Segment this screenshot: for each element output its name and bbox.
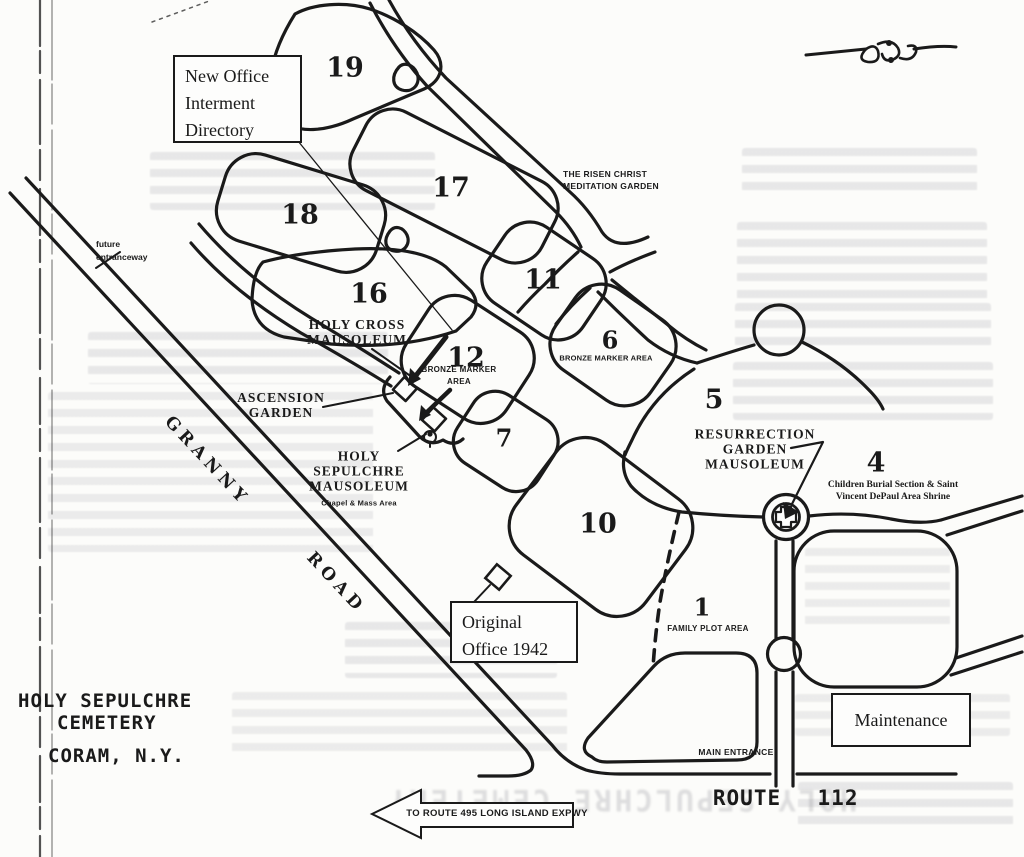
future-entranceway-label: future entranceway bbox=[96, 238, 148, 264]
children-burial-line: Children Burial Section & Saint bbox=[828, 479, 958, 491]
exit-road-east-lower bbox=[951, 636, 1022, 675]
section-18-number: 18 bbox=[281, 200, 319, 231]
holy-sepulchre-mausoleum-label: HOLY SEPULCHRE MAUSOLEUM bbox=[309, 449, 409, 494]
section-5-number: 5 bbox=[705, 385, 724, 416]
section-1-number: 1 bbox=[694, 593, 711, 622]
ascension-line: GARDEN bbox=[237, 405, 325, 420]
resurrection-line: MAUSOLEUM bbox=[695, 457, 816, 472]
ascension-pointer-line bbox=[323, 393, 393, 407]
resurrection-line: GARDEN bbox=[695, 442, 816, 457]
section-7-number: 7 bbox=[496, 424, 513, 453]
children-burial-label: Children Burial Section & Saint Vincent … bbox=[828, 479, 958, 503]
island bbox=[386, 228, 408, 252]
bronze-marker-line: AREA bbox=[421, 376, 496, 388]
hsm-line: MAUSOLEUM bbox=[309, 479, 409, 494]
section-11-number: 11 bbox=[524, 265, 562, 296]
road-stub bbox=[610, 252, 655, 272]
road-edge bbox=[802, 342, 883, 409]
road-edge bbox=[612, 280, 706, 350]
maintenance-box: Maintenance bbox=[831, 693, 971, 747]
new-office-line: Directory bbox=[185, 117, 290, 144]
ascension-garden-label: ASCENSION GARDEN bbox=[237, 390, 325, 420]
road-edge bbox=[809, 514, 941, 522]
family-plot-area-label: FAMILY PLOT AREA bbox=[667, 623, 748, 635]
original-office-flagpole bbox=[474, 585, 490, 602]
granny-road-edge bbox=[10, 193, 533, 776]
future-line: future bbox=[96, 238, 148, 251]
title-line-2: CEMETERY bbox=[57, 712, 157, 734]
risen-christ-label: THE RISEN CHRIST MEDITATION GARDEN bbox=[563, 168, 659, 192]
scan-mark bbox=[152, 0, 212, 22]
island bbox=[394, 64, 418, 90]
cul-de-sac bbox=[754, 305, 804, 355]
section-17-number: 17 bbox=[432, 173, 470, 204]
section-6-number: 6 bbox=[602, 326, 619, 355]
road-edge bbox=[697, 345, 754, 363]
maintenance-loop bbox=[794, 531, 957, 687]
future-line: entranceway bbox=[96, 251, 148, 264]
bronze-marker-area-6-label: BRONZE MARKER AREA bbox=[559, 354, 652, 363]
section-19-number: 19 bbox=[326, 53, 364, 84]
statue-icon bbox=[424, 431, 436, 447]
route-112-label: ROUTE bbox=[713, 786, 781, 810]
flourish-divider-icon bbox=[806, 40, 956, 63]
hsm-line: SEPULCHRE bbox=[309, 464, 409, 479]
cemetery-map-page: HOLY SEPULCHRE CEMETERY bbox=[0, 0, 1024, 857]
original-office-line: Office 1942 bbox=[462, 636, 566, 663]
maintenance-label: Maintenance bbox=[855, 707, 948, 734]
risen-christ-line: MEDITATION GARDEN bbox=[563, 180, 659, 192]
bronze-marker-line: BRONZE MARKER bbox=[421, 364, 496, 376]
new-office-directory-box: New Office Interment Directory bbox=[173, 55, 302, 143]
main-entrance-label: MAIN ENTRANCE bbox=[698, 746, 773, 758]
children-burial-line: Vincent DePaul Area Shrine bbox=[828, 491, 958, 503]
section-16-number: 16 bbox=[350, 279, 388, 310]
resurrection-garden-mausoleum-label: RESURRECTION GARDEN MAUSOLEUM bbox=[695, 427, 816, 472]
new-office-line: New Office bbox=[185, 63, 290, 90]
resurrection-line: RESURRECTION bbox=[695, 427, 816, 442]
route-112-number: 112 bbox=[818, 786, 859, 810]
hsm-line: HOLY bbox=[309, 449, 409, 464]
title-line-3: CORAM, N.Y. bbox=[48, 745, 185, 767]
holy-cross-line: HOLY CROSS bbox=[307, 317, 407, 332]
new-office-line: Interment bbox=[185, 90, 290, 117]
title-line-1: HOLY SEPULCHRE bbox=[18, 690, 192, 712]
road-edge bbox=[191, 243, 391, 386]
original-office-box: Original Office 1942 bbox=[450, 601, 578, 663]
risen-christ-line: THE RISEN CHRIST bbox=[563, 168, 659, 180]
section-4-number: 4 bbox=[867, 448, 886, 479]
chapel-mass-area-label: Chapel & Mass Area bbox=[321, 499, 396, 508]
section-10-number: 10 bbox=[579, 509, 617, 540]
ascension-line: ASCENSION bbox=[237, 390, 325, 405]
holy-cross-mausoleum-label: HOLY CROSS MAUSOLEUM bbox=[307, 317, 407, 347]
original-office-line: Original bbox=[462, 609, 566, 636]
holy-cross-line: MAUSOLEUM bbox=[307, 332, 407, 347]
route-495-arrow-label: TO ROUTE 495 LONG ISLAND EXPWY bbox=[406, 808, 587, 820]
bronze-marker-area-12-label: BRONZE MARKER AREA bbox=[421, 364, 496, 388]
